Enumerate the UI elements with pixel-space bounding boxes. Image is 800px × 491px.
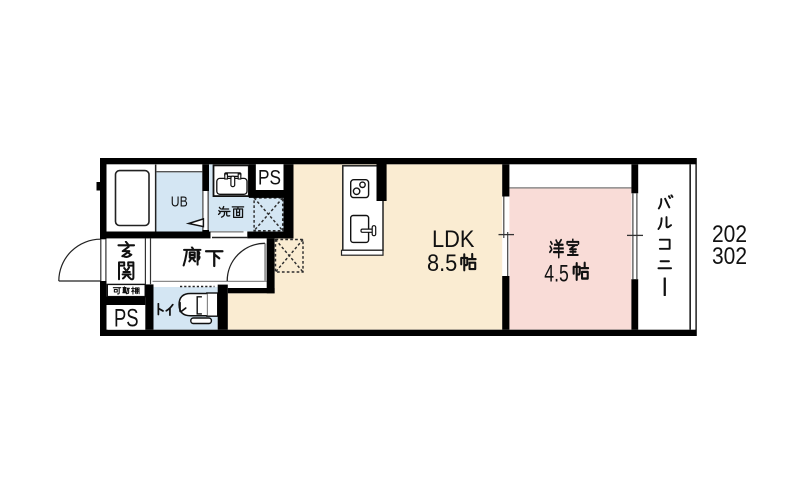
svg-text:UB: UB bbox=[171, 194, 188, 211]
svg-text:LDK: LDK bbox=[432, 226, 475, 253]
svg-text:302: 302 bbox=[712, 243, 747, 270]
svg-text:8.5: 8.5 bbox=[427, 250, 457, 277]
svg-text:PS: PS bbox=[114, 304, 139, 332]
svg-text:4.5: 4.5 bbox=[544, 261, 569, 288]
svg-text:PS: PS bbox=[258, 166, 281, 189]
